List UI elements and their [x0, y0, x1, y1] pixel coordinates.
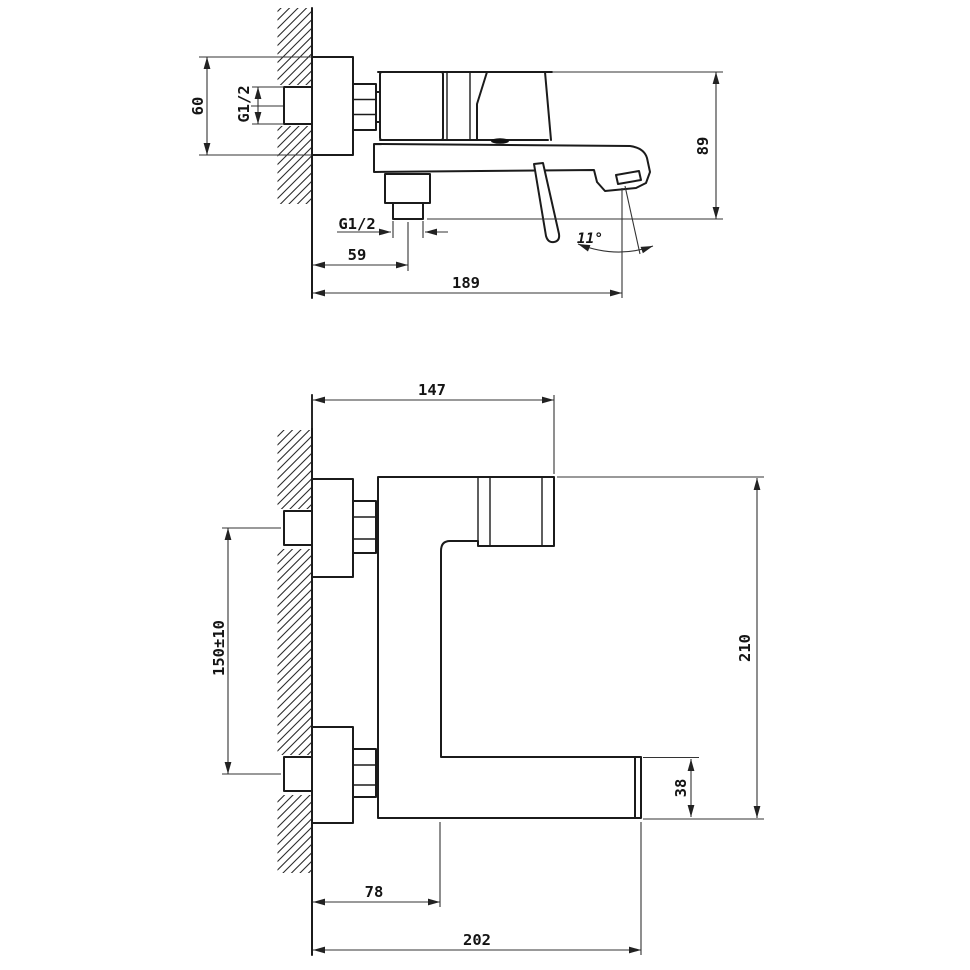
dim-78: 78	[313, 822, 440, 907]
side-view: 60 G1/2 89 G1/2 59	[189, 8, 723, 298]
outlet-thread-stub	[393, 203, 423, 219]
plan-view: 147 150±10 210 38 78	[210, 381, 764, 955]
dim-label-89: 89	[694, 137, 712, 156]
faucet-technical-drawing: 60 G1/2 89 G1/2 59	[0, 0, 970, 970]
dim-38: 38	[643, 758, 699, 818]
mixer-body	[378, 477, 641, 818]
dim-label-147: 147	[418, 381, 446, 399]
dim-202: 202	[313, 822, 641, 955]
dim-label-78: 78	[365, 883, 384, 901]
escutcheon-top	[312, 479, 353, 577]
wall-hatch	[278, 430, 313, 873]
cartridge-housing	[380, 72, 443, 140]
escutcheon	[312, 57, 353, 155]
shower-outlet	[385, 174, 430, 219]
wall	[275, 395, 313, 955]
inlet-stub-bottom	[284, 757, 312, 791]
stream-line	[625, 186, 640, 254]
inlet-stub-top	[284, 511, 312, 545]
outlet-block	[385, 174, 430, 203]
dim-label-60: 60	[189, 97, 207, 116]
wall	[275, 8, 313, 298]
dim-label-g12-outlet: G1/2	[338, 215, 375, 233]
dim-label-210: 210	[736, 634, 754, 662]
dim-150: 150±10	[210, 528, 281, 774]
body-outline	[378, 477, 641, 818]
dim-label-150: 150±10	[210, 620, 228, 676]
dim-189: 189	[313, 188, 622, 298]
lever-rod	[534, 163, 559, 242]
hex-nut-top	[353, 501, 376, 553]
drawing-page: 60 G1/2 89 G1/2 59	[0, 0, 970, 970]
mixer-body	[378, 72, 552, 144]
dim-label-59: 59	[348, 246, 367, 264]
escutcheon-bottom	[312, 727, 353, 823]
lever-front-edge	[477, 72, 487, 140]
body-slot	[491, 138, 509, 144]
dim-label-11deg: 11°	[577, 231, 603, 247]
hex-nut	[353, 84, 376, 130]
dim-label-202: 202	[463, 931, 491, 949]
dim-label-g12-inlet: G1/2	[235, 85, 253, 122]
handle-back-edge	[545, 72, 551, 140]
dim-label-189: 189	[452, 274, 480, 292]
dim-147: 147	[312, 381, 554, 474]
dim-label-38: 38	[672, 779, 690, 798]
inlet-stub	[284, 87, 312, 124]
dim-angle-11: 11°	[577, 186, 653, 254]
hex-nut-bottom	[353, 749, 376, 797]
